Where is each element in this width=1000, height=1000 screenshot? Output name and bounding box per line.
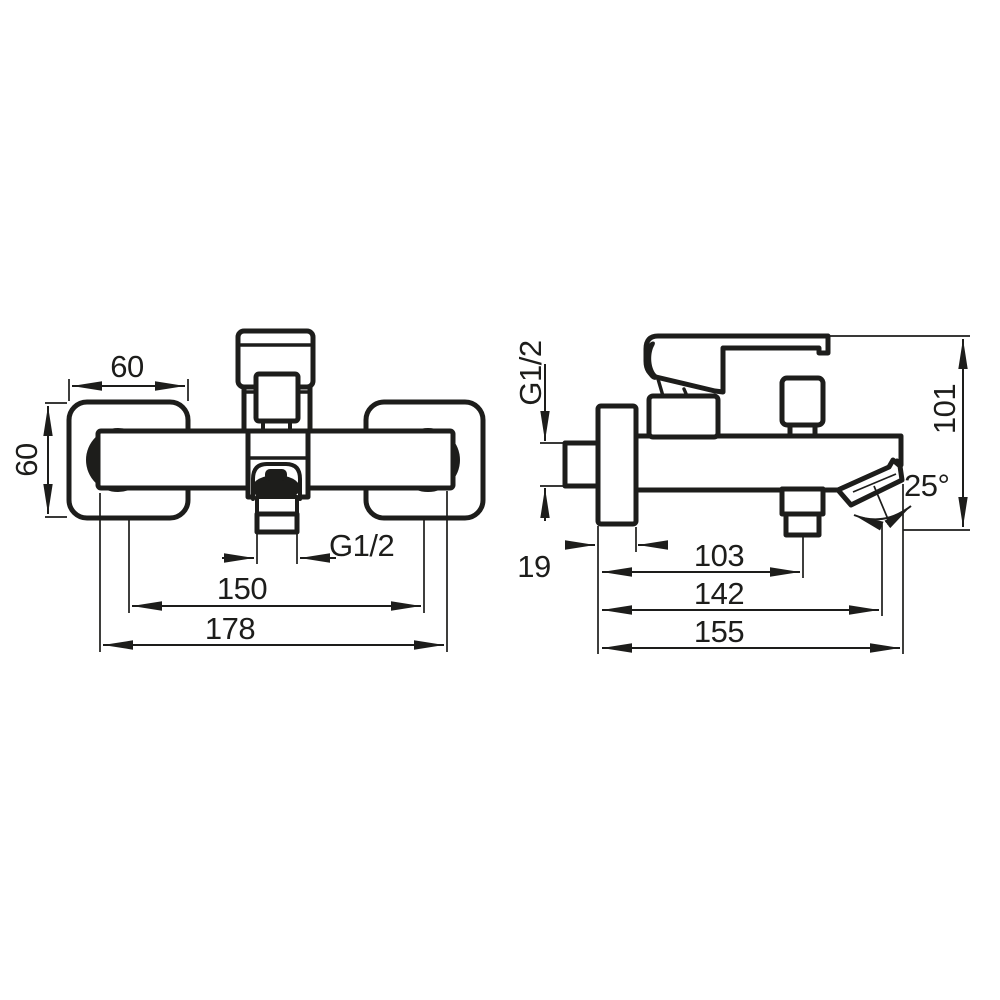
drawing-canvas: 60 60 G1/2 150 178	[0, 0, 1000, 1000]
dim-label-overall-reach: 155	[694, 614, 744, 649]
technical-drawing: 60 60 G1/2 150 178	[0, 0, 1000, 1000]
side-cartridge-housing	[649, 396, 718, 437]
front-outlet-pipe	[257, 497, 297, 514]
side-wall-plate	[598, 406, 636, 524]
side-shower-outlet-thread	[786, 514, 819, 535]
side-diverter-knob	[782, 378, 823, 435]
front-spout-opening-tab	[265, 469, 287, 481]
front-view: 60 60 G1/2 150 178	[9, 331, 483, 652]
dim-label-plate-width: 60	[110, 349, 144, 384]
front-outlet-thread	[257, 514, 297, 532]
dim-label-plate-depth: 19	[517, 549, 550, 584]
dim-label-overall-height: 101	[927, 384, 962, 434]
side-shower-outlet	[782, 489, 823, 514]
dim-label-outlet-thread: G1/2	[329, 528, 394, 563]
front-handshower-cone	[256, 374, 298, 421]
dim-label-shower-outlet-reach: 103	[694, 538, 744, 573]
dim-label-inlet-thread: G1/2	[513, 340, 548, 405]
dim-label-spout-angle: 25°	[904, 468, 949, 503]
side-view: G1/2 19 103 142 155 101 25°	[513, 336, 970, 654]
dim-label-overall-width: 178	[205, 611, 255, 646]
side-inlet-connector	[565, 443, 598, 486]
dim-label-connection-spacing: 150	[217, 571, 267, 606]
dim-label-spout-axis-reach: 142	[694, 576, 744, 611]
dim-label-plate-height: 60	[9, 443, 44, 477]
